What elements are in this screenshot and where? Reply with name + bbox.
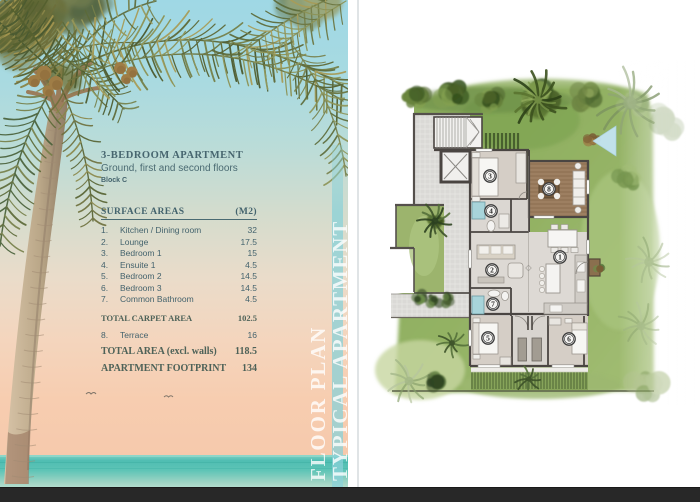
svg-text:7: 7 xyxy=(491,300,495,309)
svg-text:6: 6 xyxy=(567,335,571,344)
svg-text:4: 4 xyxy=(489,207,493,216)
svg-text:3: 3 xyxy=(488,172,492,181)
svg-text:8: 8 xyxy=(547,185,551,194)
svg-text:2: 2 xyxy=(490,266,494,275)
svg-text:1: 1 xyxy=(558,253,562,262)
svg-text:5: 5 xyxy=(486,334,490,343)
